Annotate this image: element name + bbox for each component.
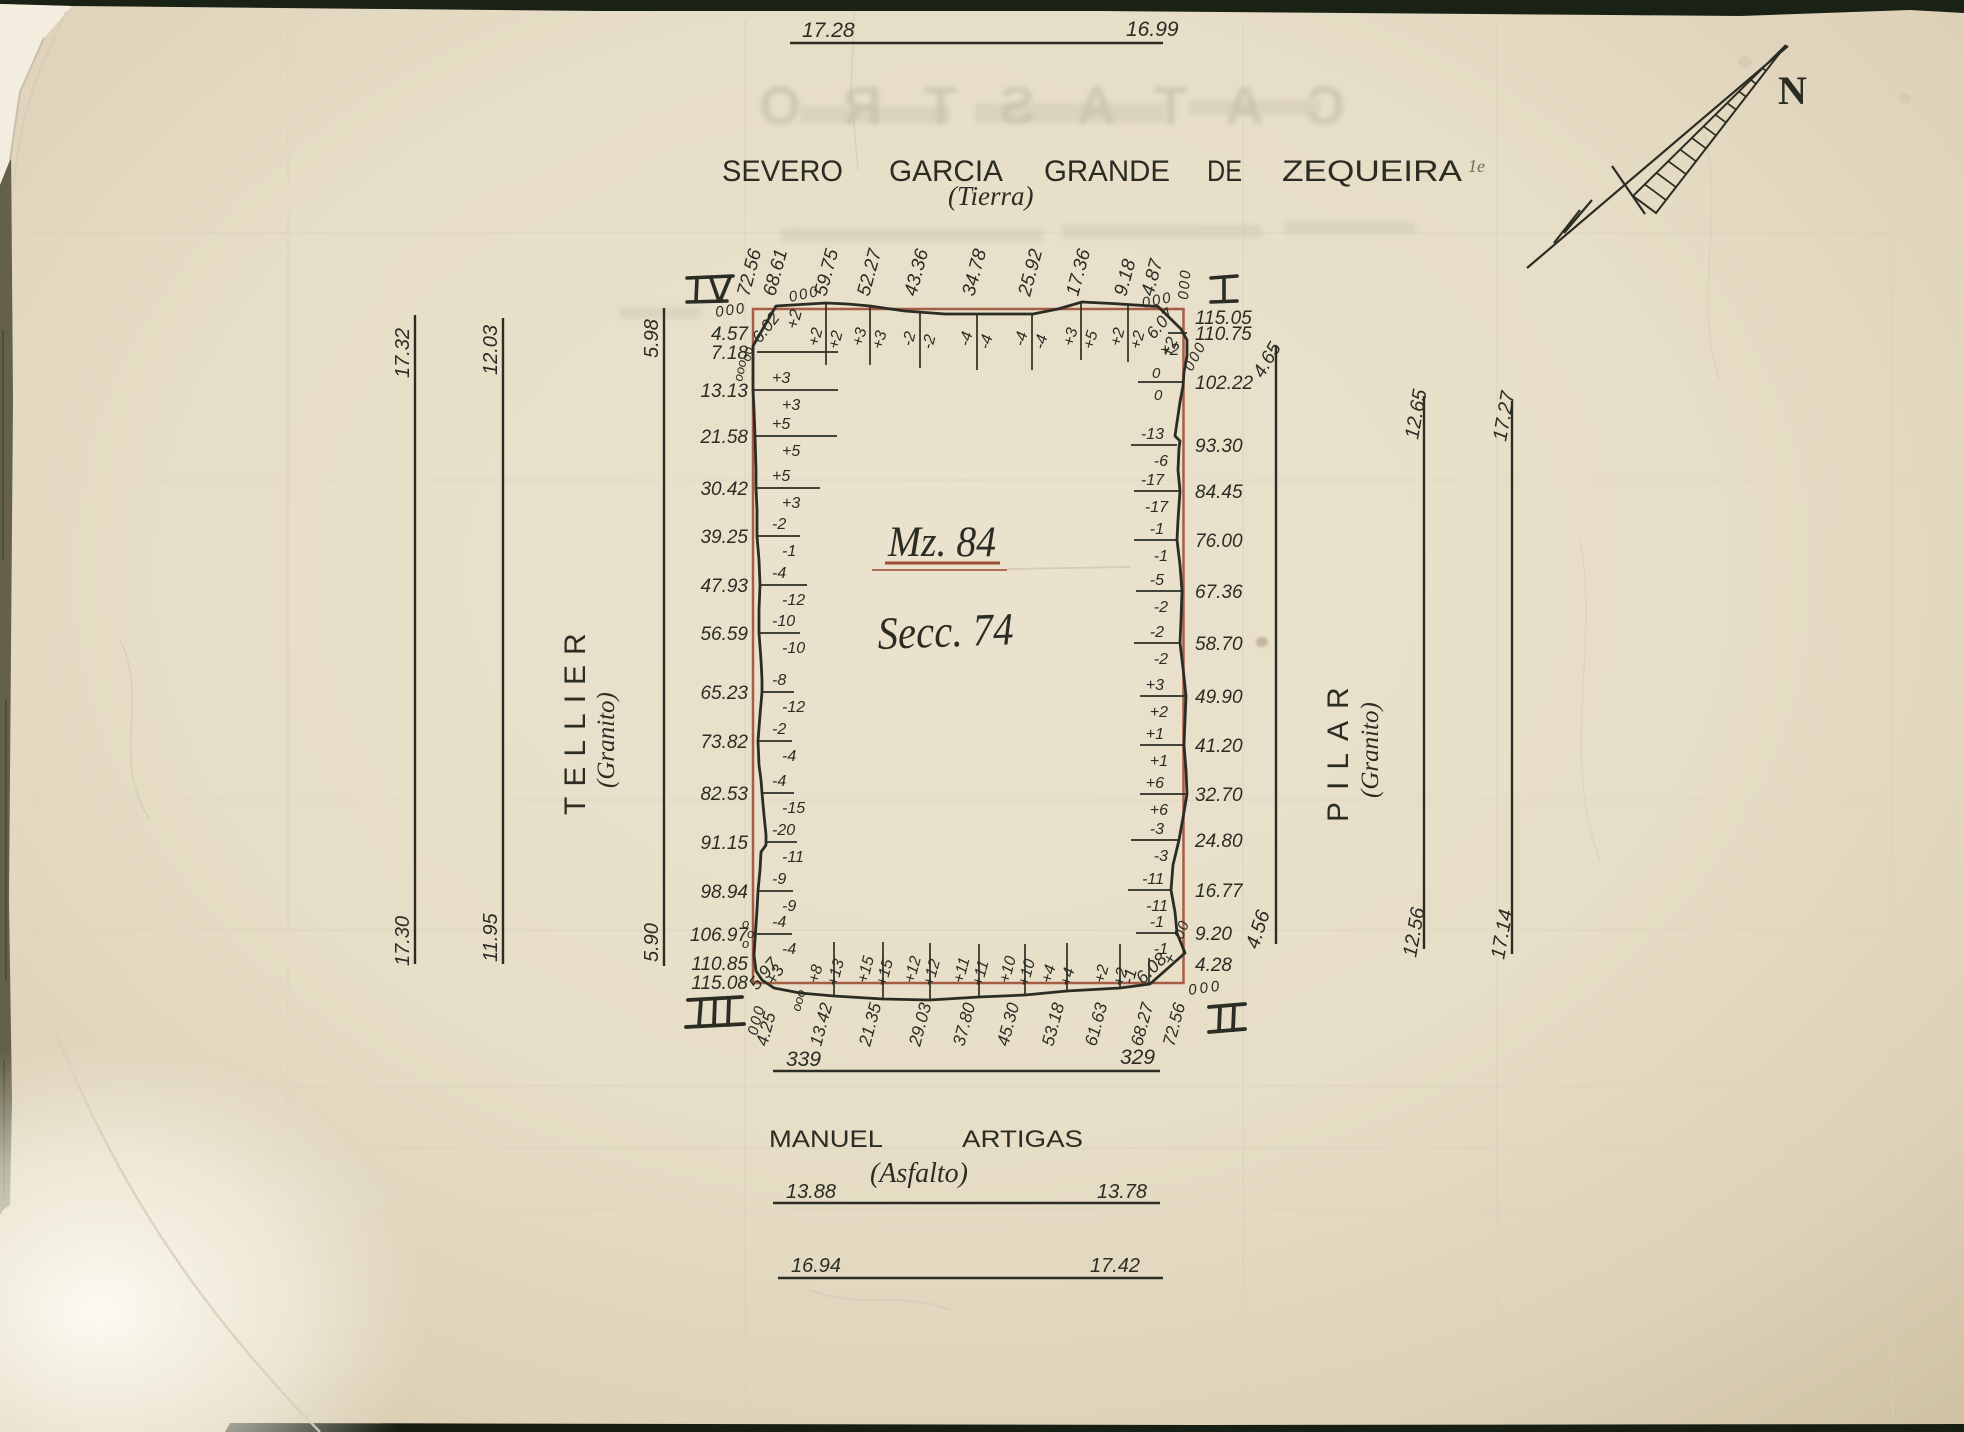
svg-text:-4: -4 [772,914,786,931]
svg-text:-9: -9 [772,871,786,888]
svg-text:-11: -11 [1142,871,1164,888]
svg-text:-12: -12 [782,592,805,609]
svg-text:-1: -1 [782,543,796,560]
svg-text:16.77: 16.77 [1195,881,1244,902]
svg-text:82.53: 82.53 [700,784,748,805]
svg-text:76.00: 76.00 [1195,531,1243,552]
svg-text:-2: -2 [1154,651,1168,668]
svg-text:13.13: 13.13 [700,381,748,402]
svg-text:-4: -4 [772,565,786,582]
svg-text:32.70: 32.70 [1195,785,1243,806]
svg-text:PILAR: PILAR [1322,675,1355,822]
svg-text:-11: -11 [782,849,804,866]
svg-text:-4: -4 [782,748,796,765]
svg-text:TELLIER: TELLIER [559,623,592,815]
svg-text:+5: +5 [772,416,790,433]
svg-text:-2: -2 [1154,599,1168,616]
svg-text:(Granito): (Granito) [1357,702,1384,798]
svg-text:-10: -10 [772,613,795,630]
svg-text:+3: +3 [782,397,800,414]
svg-text:(Asfalto): (Asfalto) [870,1158,968,1189]
svg-text:-4: -4 [782,941,796,958]
svg-text:-1: -1 [1150,914,1164,931]
svg-text:30.42: 30.42 [700,479,748,500]
svg-text:1e: 1e [1468,156,1485,176]
svg-text:110.85: 110.85 [691,954,748,975]
svg-text:-11: -11 [1146,898,1168,915]
svg-text:17.32: 17.32 [392,328,414,378]
svg-text:115.08: 115.08 [691,973,748,994]
svg-text:56.59: 56.59 [700,624,748,645]
svg-text:+1: +1 [1146,726,1164,743]
svg-text:4.28: 4.28 [1195,955,1232,976]
svg-text:ZEQUEIRA: ZEQUEIRA [1282,155,1462,188]
svg-text:-8: -8 [772,672,786,689]
svg-text:-5: -5 [1150,572,1164,589]
svg-text:9.20: 9.20 [1195,924,1232,945]
svg-text:-9: -9 [782,898,796,915]
svg-text:SEVERO: SEVERO [722,155,843,188]
svg-text:47.93: 47.93 [700,576,748,597]
svg-text:-2: -2 [772,516,786,533]
svg-text:12.03: 12.03 [480,325,502,375]
svg-text:102.22: 102.22 [1195,373,1254,394]
svg-text:17.30: 17.30 [392,916,414,966]
svg-text:Mz. 84: Mz. 84 [887,519,996,566]
svg-text:(Tierra): (Tierra) [948,181,1034,211]
svg-text:+6: +6 [1146,775,1164,792]
svg-text:67.36: 67.36 [1195,582,1243,603]
svg-text:110.75: 110.75 [1195,324,1252,345]
svg-text:-17: -17 [1141,472,1165,489]
svg-text:84.45: 84.45 [1195,482,1243,503]
svg-text:ARTIGAS: ARTIGAS [962,1126,1083,1153]
svg-text:24.80: 24.80 [1194,831,1243,852]
svg-text:+3: +3 [782,495,800,512]
svg-text:0: 0 [1154,387,1163,404]
svg-text:13.88: 13.88 [786,1181,836,1203]
svg-text:98.94: 98.94 [700,882,748,903]
svg-text:DE: DE [1207,155,1242,188]
svg-text:-3: -3 [1150,821,1164,838]
svg-text:-10: -10 [782,640,805,657]
svg-text:-6: -6 [1154,453,1168,470]
svg-text:-17: -17 [1145,499,1169,516]
svg-text:+1: +1 [1150,753,1168,770]
svg-text:-12: -12 [782,699,805,716]
svg-text:-1: -1 [1150,521,1164,538]
svg-text:21.58: 21.58 [699,427,748,448]
svg-text:5.98: 5.98 [641,319,663,358]
svg-text:65.23: 65.23 [700,683,748,704]
svg-text:17.28: 17.28 [802,19,855,42]
svg-text:GRANDE: GRANDE [1044,155,1170,188]
svg-text:-1: -1 [1154,548,1168,565]
svg-text:17.42: 17.42 [1090,1255,1140,1277]
svg-text:4.57: 4.57 [711,324,749,345]
svg-text:-2: -2 [772,721,786,738]
svg-text:+5: +5 [782,443,800,460]
svg-text:-15: -15 [782,800,805,817]
svg-text:Secc. 74: Secc. 74 [877,603,1015,659]
svg-text:13.78: 13.78 [1097,1181,1147,1203]
svg-text:+5: +5 [772,468,790,485]
svg-text:(Granito): (Granito) [593,692,620,788]
svg-text:-20: -20 [772,822,795,839]
svg-text:000: 000 [1175,268,1195,300]
svg-text:-3: -3 [1154,848,1168,865]
svg-text:329: 329 [1120,1046,1155,1069]
svg-text:39.25: 39.25 [700,527,748,548]
svg-text:58.70: 58.70 [1195,634,1243,655]
svg-text:-4: -4 [772,773,786,790]
svg-text:N: N [1778,68,1807,113]
svg-text:16.99: 16.99 [1126,18,1179,41]
svg-text:16.94: 16.94 [791,1255,841,1277]
svg-text:339: 339 [786,1048,821,1071]
svg-text:41.20: 41.20 [1195,736,1243,757]
svg-text:+3: +3 [1146,677,1164,694]
svg-text:49.90: 49.90 [1195,687,1243,708]
svg-text:0: 0 [1152,365,1161,382]
svg-text:106.97: 106.97 [690,925,750,946]
svg-text:73.82: 73.82 [700,732,748,753]
svg-text:5.90: 5.90 [641,923,663,962]
svg-text:+3: +3 [772,370,790,387]
svg-text:91.15: 91.15 [700,833,748,854]
svg-text:+2: +2 [1150,704,1168,721]
svg-text:o: o [742,936,749,951]
svg-text:-13: -13 [1141,426,1164,443]
svg-text:93.30: 93.30 [1195,436,1243,457]
svg-text:MANUEL: MANUEL [769,1126,883,1153]
svg-text:11.95: 11.95 [480,913,502,962]
svg-text:-2: -2 [1150,624,1164,641]
svg-text:+6: +6 [1150,802,1168,819]
